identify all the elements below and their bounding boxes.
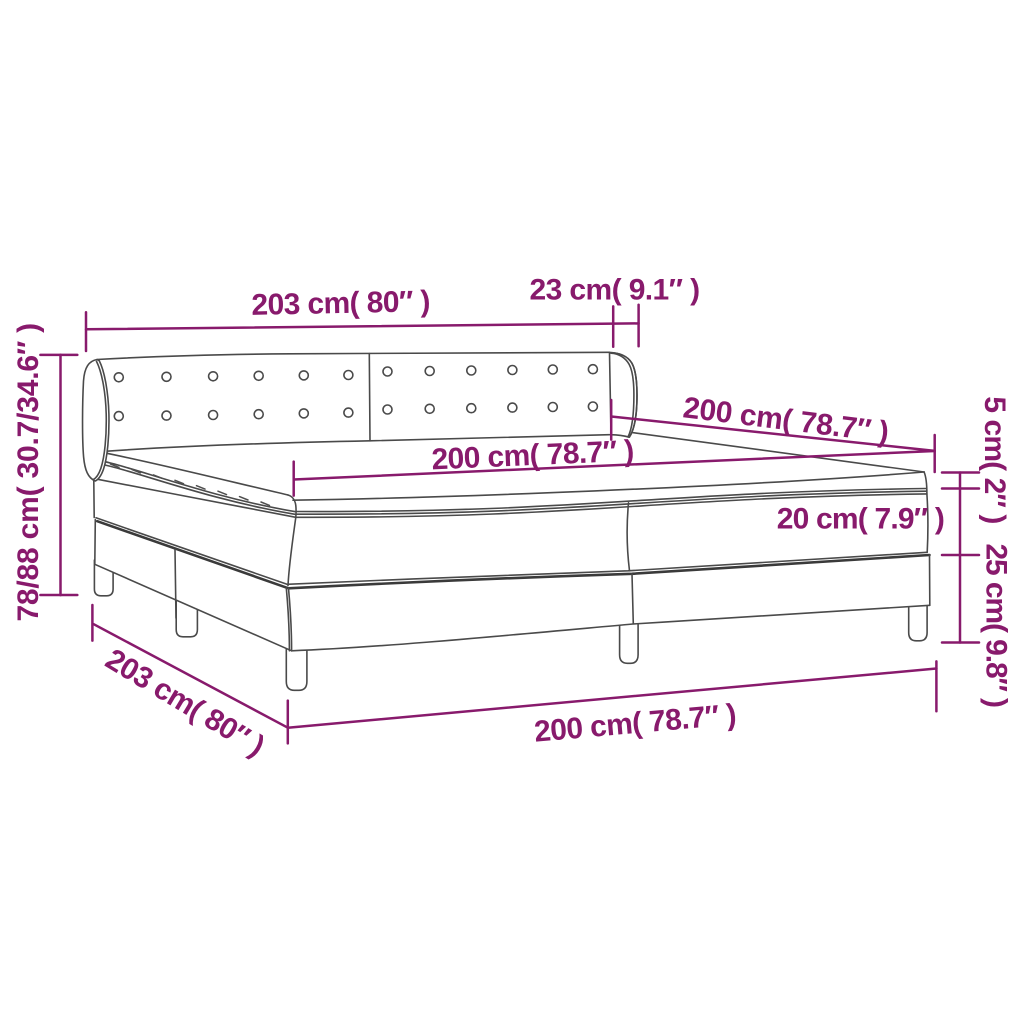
svg-text:23 cm( 9.1″ ): 23 cm( 9.1″ ) bbox=[530, 274, 700, 307]
svg-text:5 cm( 2″ ): 5 cm( 2″ ) bbox=[978, 396, 1011, 523]
svg-text:25 cm( 9.8″ ): 25 cm( 9.8″ ) bbox=[980, 543, 1013, 707]
svg-text:78/88 cm( 30.7/34.6″ ): 78/88 cm( 30.7/34.6″ ) bbox=[12, 323, 45, 622]
svg-text:20 cm( 7.9″ ): 20 cm( 7.9″ ) bbox=[777, 503, 944, 536]
svg-text:203 cm( 80″ ): 203 cm( 80″ ) bbox=[251, 285, 430, 322]
